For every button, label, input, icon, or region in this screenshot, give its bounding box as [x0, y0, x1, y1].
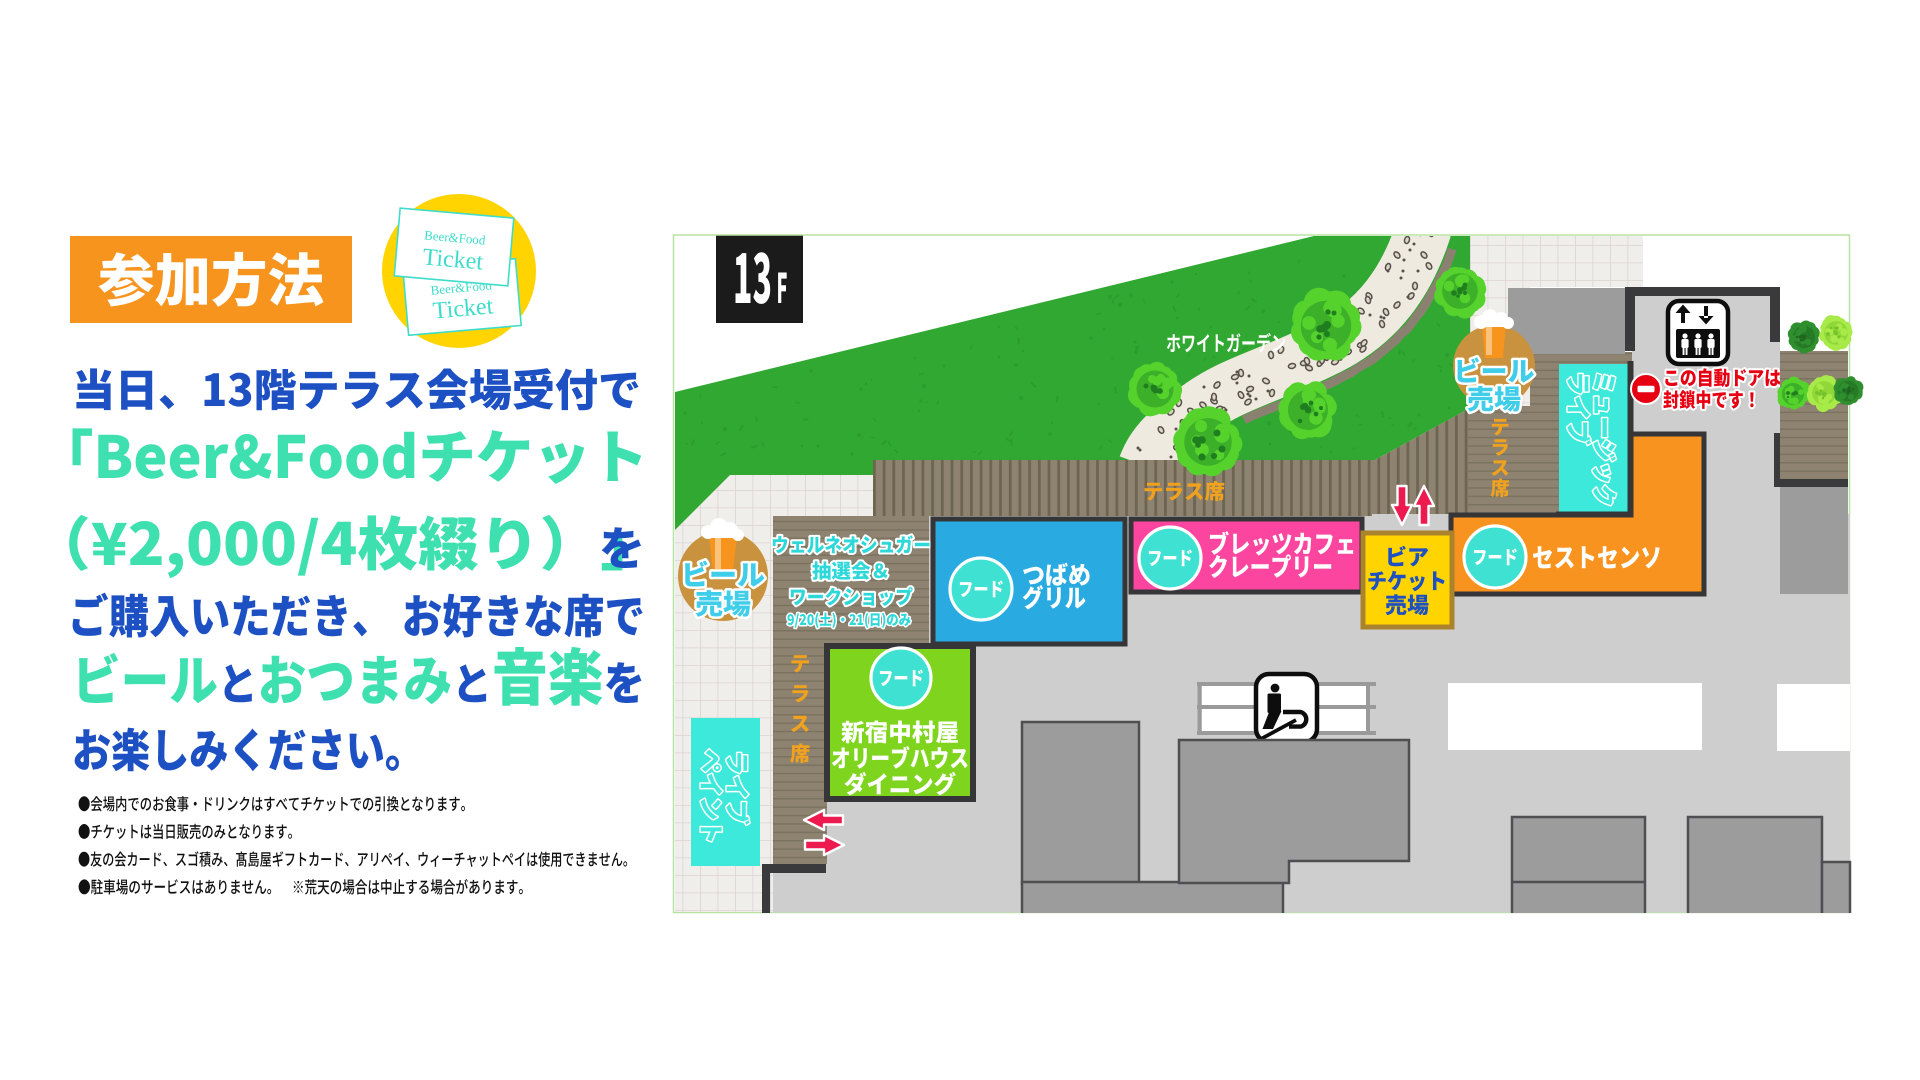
svg-text:Ticket: Ticket — [432, 293, 495, 324]
svg-text:Ticket: Ticket — [422, 244, 485, 275]
